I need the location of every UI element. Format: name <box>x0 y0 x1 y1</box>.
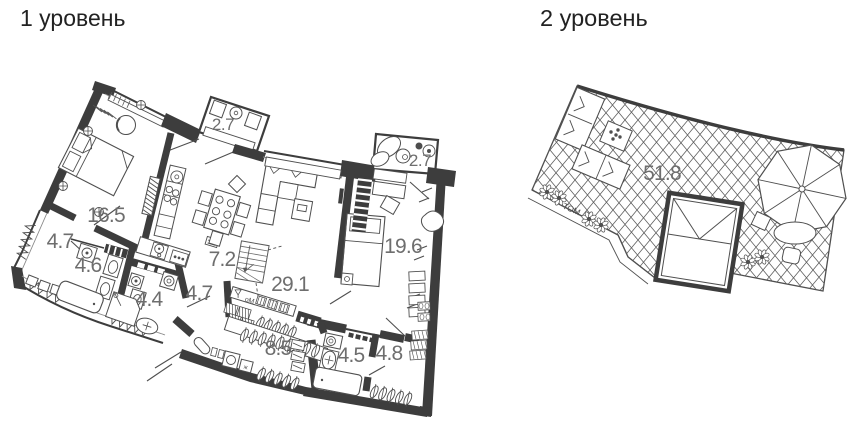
svg-text:2.7: 2.7 <box>409 151 431 170</box>
svg-text:1 уровень: 1 уровень <box>20 5 125 31</box>
svg-text:4.7: 4.7 <box>47 230 74 253</box>
svg-text:16.5: 16.5 <box>87 204 125 227</box>
svg-text:4.8: 4.8 <box>376 342 403 365</box>
svg-text:4.7: 4.7 <box>186 282 213 305</box>
svg-text:19.6: 19.6 <box>384 235 422 258</box>
svg-text:7.2: 7.2 <box>209 248 236 271</box>
svg-text:4.6: 4.6 <box>75 254 102 277</box>
svg-text:2.7: 2.7 <box>212 115 234 134</box>
svg-text:29.1: 29.1 <box>271 273 309 296</box>
svg-text:4.5: 4.5 <box>338 344 365 367</box>
svg-text:51.8: 51.8 <box>643 162 681 185</box>
svg-text:2 уровень: 2 уровень <box>540 5 648 31</box>
svg-text:4.4: 4.4 <box>136 288 164 311</box>
svg-text:8.5: 8.5 <box>265 337 292 360</box>
